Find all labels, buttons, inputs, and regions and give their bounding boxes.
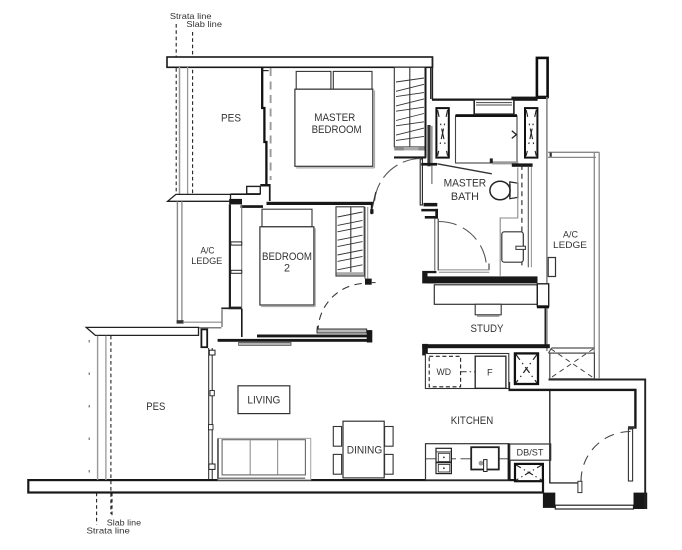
svg-text:PES: PES [146,401,165,413]
svg-text:LIVING: LIVING [247,395,280,407]
svg-text:BEDROOM: BEDROOM [262,251,312,263]
svg-text:KITCHEN: KITCHEN [451,415,494,427]
svg-text:A/C: A/C [201,245,215,255]
svg-text:Strata line: Strata line [87,526,131,536]
svg-text:2: 2 [284,262,290,274]
svg-text:F: F [487,368,493,378]
svg-text:Slab line: Slab line [186,19,222,29]
svg-text:BATH: BATH [451,191,479,203]
svg-text:MASTER: MASTER [444,178,487,190]
svg-text:WD: WD [437,367,452,377]
svg-text:DB/ST: DB/ST [517,448,544,458]
svg-text:A/C: A/C [563,230,578,240]
svg-text:BEDROOM: BEDROOM [312,124,362,136]
svg-text:STUDY: STUDY [471,323,504,335]
svg-text:LEDGE: LEDGE [553,240,587,250]
svg-text:LEDGE: LEDGE [191,256,222,266]
svg-text:PES: PES [221,112,241,124]
svg-text:MASTER: MASTER [314,112,355,124]
svg-text:DINING: DINING [347,445,383,457]
